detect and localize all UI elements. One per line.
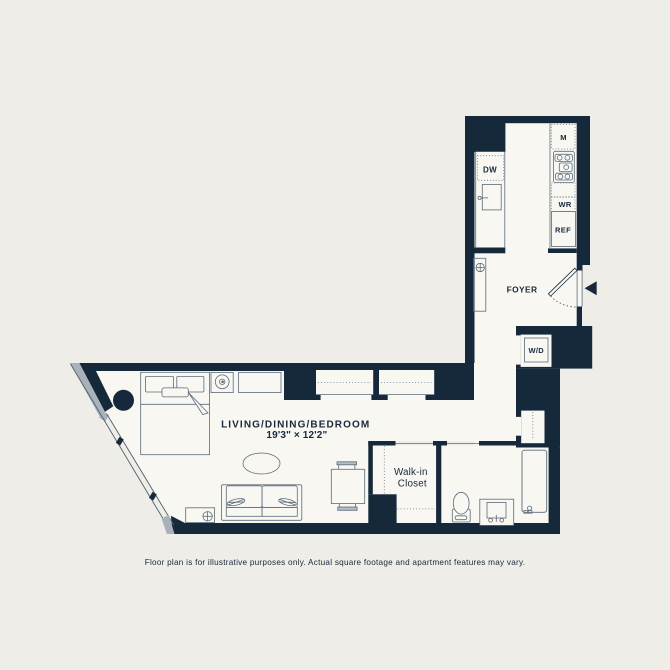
- svg-text:Closet: Closet: [398, 479, 427, 490]
- svg-text:REF: REF: [555, 226, 571, 235]
- svg-text:M: M: [560, 133, 567, 142]
- svg-text:DW: DW: [483, 166, 497, 175]
- svg-text:19'3" × 12'2": 19'3" × 12'2": [266, 430, 327, 441]
- svg-text:LIVING/DINING/BEDROOM: LIVING/DINING/BEDROOM: [221, 419, 370, 430]
- svg-text:WR: WR: [558, 200, 571, 209]
- svg-text:Walk-in: Walk-in: [394, 467, 428, 478]
- svg-text:FOYER: FOYER: [507, 285, 538, 295]
- svg-text:W/D: W/D: [528, 346, 544, 355]
- svg-text:Floor plan is for illustrative: Floor plan is for illustrative purposes …: [145, 558, 526, 567]
